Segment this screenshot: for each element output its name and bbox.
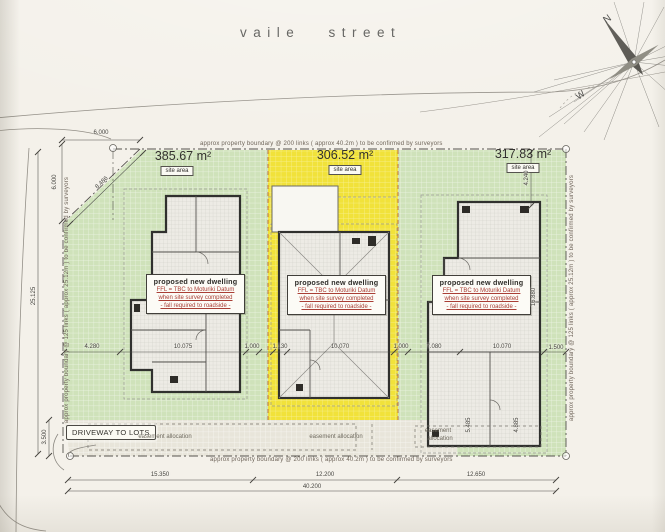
dwelling-label-lot-2: proposed new dwelling FFL = TBC to Motur… [287, 275, 386, 315]
dwelling-title: proposed new dwelling [290, 278, 383, 287]
dim-driveway-depth: 3.500 [42, 429, 48, 444]
dim-street-offset: 6.000 [93, 130, 108, 136]
lot-2-site-area: 306.52 m² [317, 148, 373, 162]
dim-left-offset: 6.000 [52, 174, 58, 189]
dwelling-note-ffl: FFL = TBC to Moturiki Datum [290, 287, 383, 295]
boundary-note-left: approx property boundary @ 125 links ( a… [64, 177, 70, 423]
dim-lot3-easement-1: 5.485 [466, 417, 472, 432]
lot-1-site-area: 385.67 m² [155, 149, 211, 163]
dwelling-note-fall: - fall required to roadside - [290, 303, 383, 311]
lot-1-site-area-tag: site area [160, 166, 193, 176]
lot-2-site-area-tag: site area [328, 165, 361, 175]
dim-row-5: 10.070 [331, 344, 349, 350]
dim-row-9: 1.500 [548, 345, 563, 351]
dim-row-4: 1.130 [272, 344, 287, 350]
dim-left-depth: 25.125 [31, 287, 37, 305]
dim-row-7: 7.080 [426, 344, 441, 350]
dim-bottom-lot1: 15.350 [151, 472, 169, 478]
boundary-note-top: approx property boundary @ 200 links ( a… [200, 141, 443, 147]
boundary-note-right: approx property boundary @ 125 links ( a… [569, 175, 575, 421]
site-plan-drawing [0, 0, 665, 532]
dwelling-note-ffl: FFL = TBC to Moturiki Datum [149, 286, 242, 294]
boundary-note-bottom: approx property boundary @ 200 links ( a… [210, 457, 453, 463]
dim-lot3-house: 16.880 [531, 288, 537, 306]
easement-label-left: easement allocation [138, 434, 191, 440]
dwelling-note-fall: - fall required to roadside - [435, 303, 528, 311]
easement-label-right-2: allocation [427, 436, 452, 442]
street-name: vaile street [240, 25, 401, 40]
dim-row-2: 10.075 [174, 344, 192, 350]
dwelling-title: proposed new dwelling [435, 278, 528, 287]
dwelling-note-survey: when site survey completed [290, 295, 383, 303]
dim-row-8: 10.070 [493, 344, 511, 350]
dim-lot3-top: 4.240 [524, 170, 530, 185]
dwelling-note-ffl: FFL = TBC to Moturiki Datum [435, 287, 528, 295]
dwelling-label-lot-1: proposed new dwelling FFL = TBC to Motur… [146, 274, 245, 314]
dim-bottom-lot2: 12.200 [316, 472, 334, 478]
dwelling-note-survey: when site survey completed [149, 294, 242, 302]
dim-row-6: 1.000 [393, 344, 408, 350]
dwelling-note-survey: when site survey completed [435, 295, 528, 303]
dim-row-3: 1.000 [244, 344, 259, 350]
dwelling-note-fall: - fall required to roadside - [149, 302, 242, 310]
site-plan-scan: vaile street N W approx property boundar… [0, 0, 665, 532]
easement-label-right-1: easement [425, 428, 451, 434]
lot-3-site-area-tag: site area [506, 163, 539, 173]
dim-bottom-total: 40.200 [303, 484, 321, 490]
lot-3-site-area: 317.83 m² [495, 147, 551, 161]
dim-bottom-lot3: 12.650 [467, 472, 485, 478]
dim-row-1: 4.280 [84, 344, 99, 350]
dwelling-title: proposed new dwelling [149, 277, 242, 286]
dwelling-label-lot-3: proposed new dwelling FFL = TBC to Motur… [432, 275, 531, 315]
dim-lot3-easement-2: 4.885 [514, 417, 520, 432]
easement-label-middle: easement allocation [309, 434, 362, 440]
